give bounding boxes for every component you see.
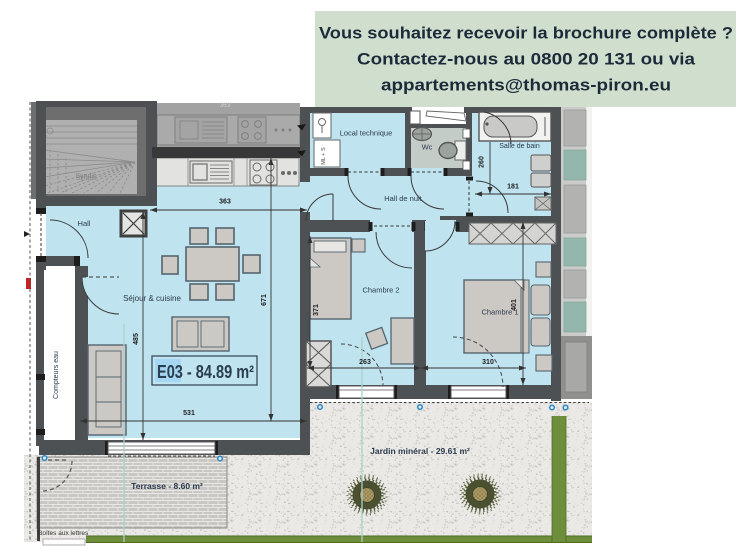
svg-text:Salle de bain: Salle de bain xyxy=(499,143,540,150)
svg-text:Chambre 1: Chambre 1 xyxy=(481,308,518,317)
svg-text:Hall de nuit: Hall de nuit xyxy=(384,194,422,203)
svg-text:Boîtes aux lettres: Boîtes aux lettres xyxy=(38,530,89,537)
svg-text:260: 260 xyxy=(479,156,486,168)
svg-text:Séjour & cuisine: Séjour & cuisine xyxy=(123,294,181,303)
svg-text:Vous souhaitez recevoir la bro: Vous souhaitez recevoir la brochure comp… xyxy=(319,24,733,43)
svg-text:E03 - 84.89 m²: E03 - 84.89 m² xyxy=(157,362,254,382)
svg-text:531: 531 xyxy=(183,410,195,417)
svg-text:181: 181 xyxy=(507,184,519,191)
svg-text:371: 371 xyxy=(313,304,320,316)
svg-text:Contactez-nous au 0800 20 131: Contactez-nous au 0800 20 131 ou via xyxy=(357,50,696,69)
svg-text:Terrasse - 8.60 m²: Terrasse - 8.60 m² xyxy=(131,481,203,491)
svg-text:363: 363 xyxy=(220,102,231,109)
svg-text:Compteurs eau: Compteurs eau xyxy=(53,351,60,399)
svg-text:Chambre 2: Chambre 2 xyxy=(362,286,399,295)
svg-text:Wc: Wc xyxy=(422,143,433,152)
svg-text:Hall: Hall xyxy=(78,219,91,228)
svg-text:Local technique: Local technique xyxy=(340,129,393,138)
svg-text:ML + S: ML + S xyxy=(321,147,327,165)
svg-text:671: 671 xyxy=(261,294,268,306)
svg-text:appartements@thomas-piron.eu: appartements@thomas-piron.eu xyxy=(381,76,671,95)
svg-text:263: 263 xyxy=(359,359,371,366)
svg-text:310: 310 xyxy=(482,359,494,366)
svg-text:485: 485 xyxy=(133,333,140,345)
svg-text:Jardin minéral - 29.61 m²: Jardin minéral - 29.61 m² xyxy=(370,446,470,456)
svg-text:Syndic: Syndic xyxy=(75,173,97,180)
svg-text:363: 363 xyxy=(219,199,231,206)
